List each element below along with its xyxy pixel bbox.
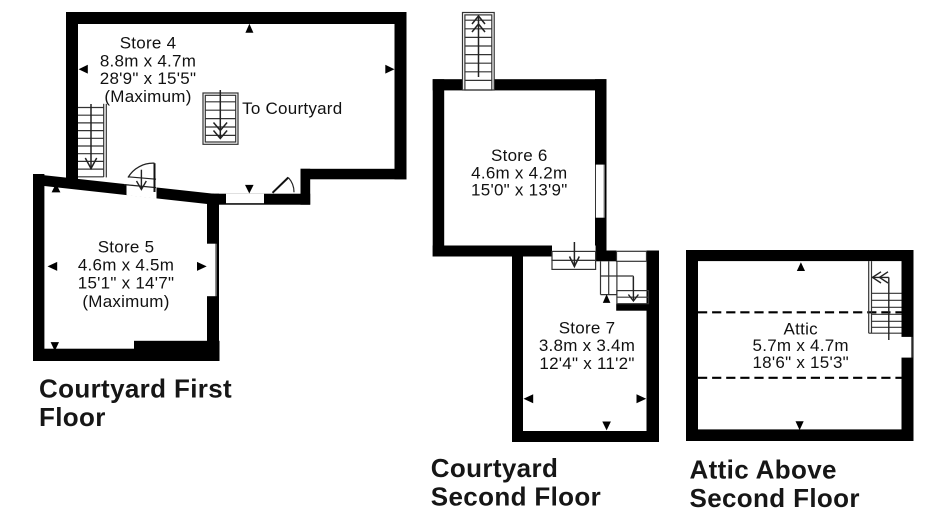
svg-text:(Maximum): (Maximum) xyxy=(104,87,191,106)
svg-text:To Courtyard: To Courtyard xyxy=(242,99,342,118)
svg-text:15'1" x 14'7": 15'1" x 14'7" xyxy=(78,274,174,293)
svg-text:18'6" x 15'3": 18'6" x 15'3" xyxy=(752,353,848,372)
svg-text:4.6m x 4.5m: 4.6m x 4.5m xyxy=(78,256,174,275)
svg-text:Courtyard: Courtyard xyxy=(431,453,558,483)
svg-text:(Maximum): (Maximum) xyxy=(82,292,169,311)
svg-text:Store 7: Store 7 xyxy=(559,318,616,337)
svg-text:8.8m x 4.7m: 8.8m x 4.7m xyxy=(100,51,196,70)
svg-text:28'9" x 15'5": 28'9" x 15'5" xyxy=(100,69,196,88)
svg-text:Second Floor: Second Floor xyxy=(431,482,601,512)
svg-text:Store 6: Store 6 xyxy=(491,146,548,165)
svg-text:15'0" x 13'9": 15'0" x 13'9" xyxy=(471,181,567,200)
svg-text:4.6m x 4.2m: 4.6m x 4.2m xyxy=(471,163,567,182)
svg-text:Attic Above: Attic Above xyxy=(690,455,837,485)
svg-text:Second Floor: Second Floor xyxy=(690,483,860,513)
svg-text:Courtyard First: Courtyard First xyxy=(39,374,232,404)
svg-text:Floor: Floor xyxy=(39,402,106,432)
svg-text:12'4" x 11'2": 12'4" x 11'2" xyxy=(539,354,634,373)
svg-text:3.8m x 3.4m: 3.8m x 3.4m xyxy=(539,336,635,355)
svg-text:Store 5: Store 5 xyxy=(98,238,155,257)
svg-text:Store 4: Store 4 xyxy=(120,34,177,53)
